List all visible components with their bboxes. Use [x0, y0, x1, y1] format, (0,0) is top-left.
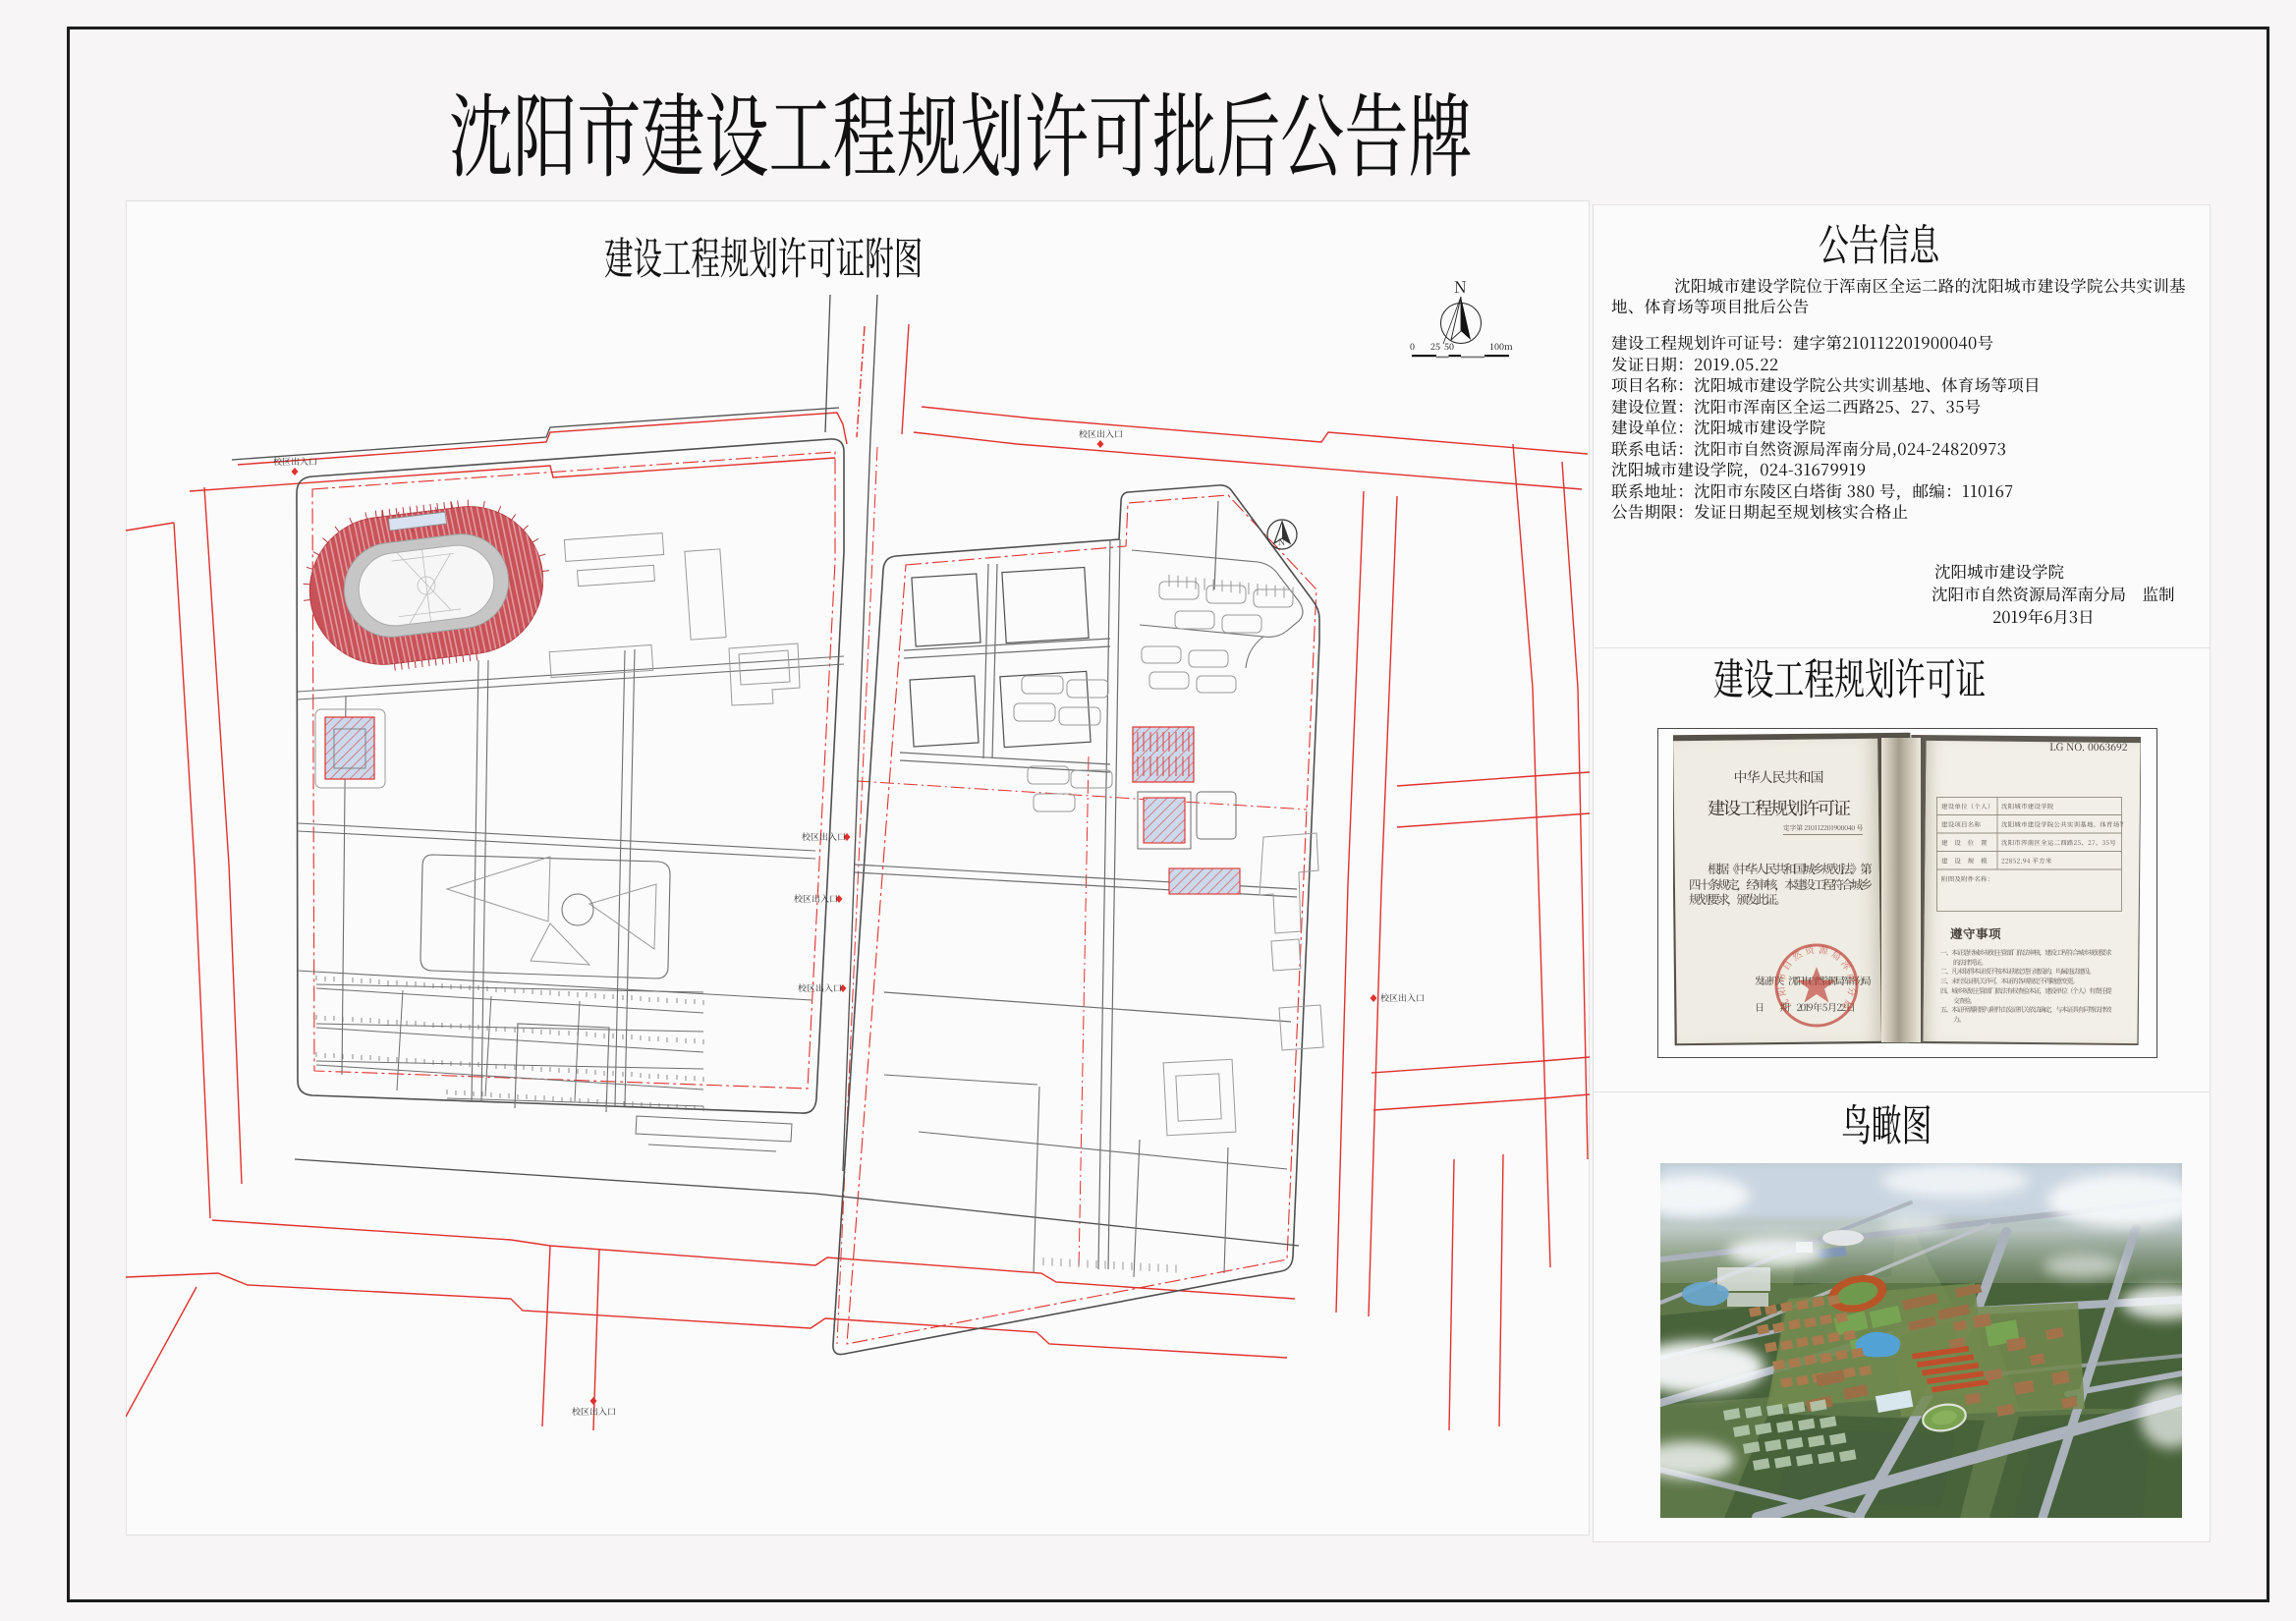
svg-text:N: N: [1278, 535, 1285, 548]
svg-text:校区出入口: 校区出入口: [572, 1405, 616, 1418]
svg-text:建设项目名称: 建设项目名称: [1941, 820, 1981, 829]
svg-text:源: 源: [1818, 942, 1829, 958]
svg-text:校区出入口: 校区出入口: [1079, 427, 1123, 440]
svg-text:0: 0: [1410, 340, 1415, 353]
svg-text:沈阳城市建设学院: 沈阳城市建设学院: [2001, 802, 2054, 810]
svg-text:N: N: [1454, 275, 1467, 298]
svg-text:校区出入口: 校区出入口: [802, 830, 846, 843]
svg-text:建 设 规 模: 建 设 规 模: [1941, 857, 1988, 866]
svg-text:沈阳市浑南区全运二西路25、27、35号: 沈阳市浑南区全运二西路25、27、35号: [2001, 838, 2116, 847]
svg-text:校区出入口: 校区出入口: [1380, 991, 1425, 1004]
svg-text:建 设 位 置: 建 设 位 置: [1941, 838, 1988, 847]
svg-text:市: 市: [1773, 971, 1789, 983]
svg-text:100m: 100m: [1489, 340, 1513, 353]
svg-text:22852.94 平方米: 22852.94 平方米: [2001, 857, 2052, 866]
svg-text:建设单位（个人）: 建设单位（个人）: [1941, 802, 1994, 810]
svg-text:附图及附件名称：: 附图及附件名称：: [1941, 874, 1994, 883]
svg-text:沈阳城市建设学院公共实训基地、体育场等项目: 沈阳城市建设学院公共实训基地、体育场等项目: [2001, 820, 2123, 829]
svg-text:分: 分: [1845, 985, 1861, 997]
svg-text:校区出入口: 校区出入口: [798, 981, 842, 994]
svg-text:校区出入口: 校区出入口: [273, 455, 317, 468]
svg-text:25: 25: [1430, 340, 1440, 353]
svg-text:50: 50: [1444, 340, 1454, 353]
svg-text:校区出入口: 校区出入口: [794, 892, 838, 905]
